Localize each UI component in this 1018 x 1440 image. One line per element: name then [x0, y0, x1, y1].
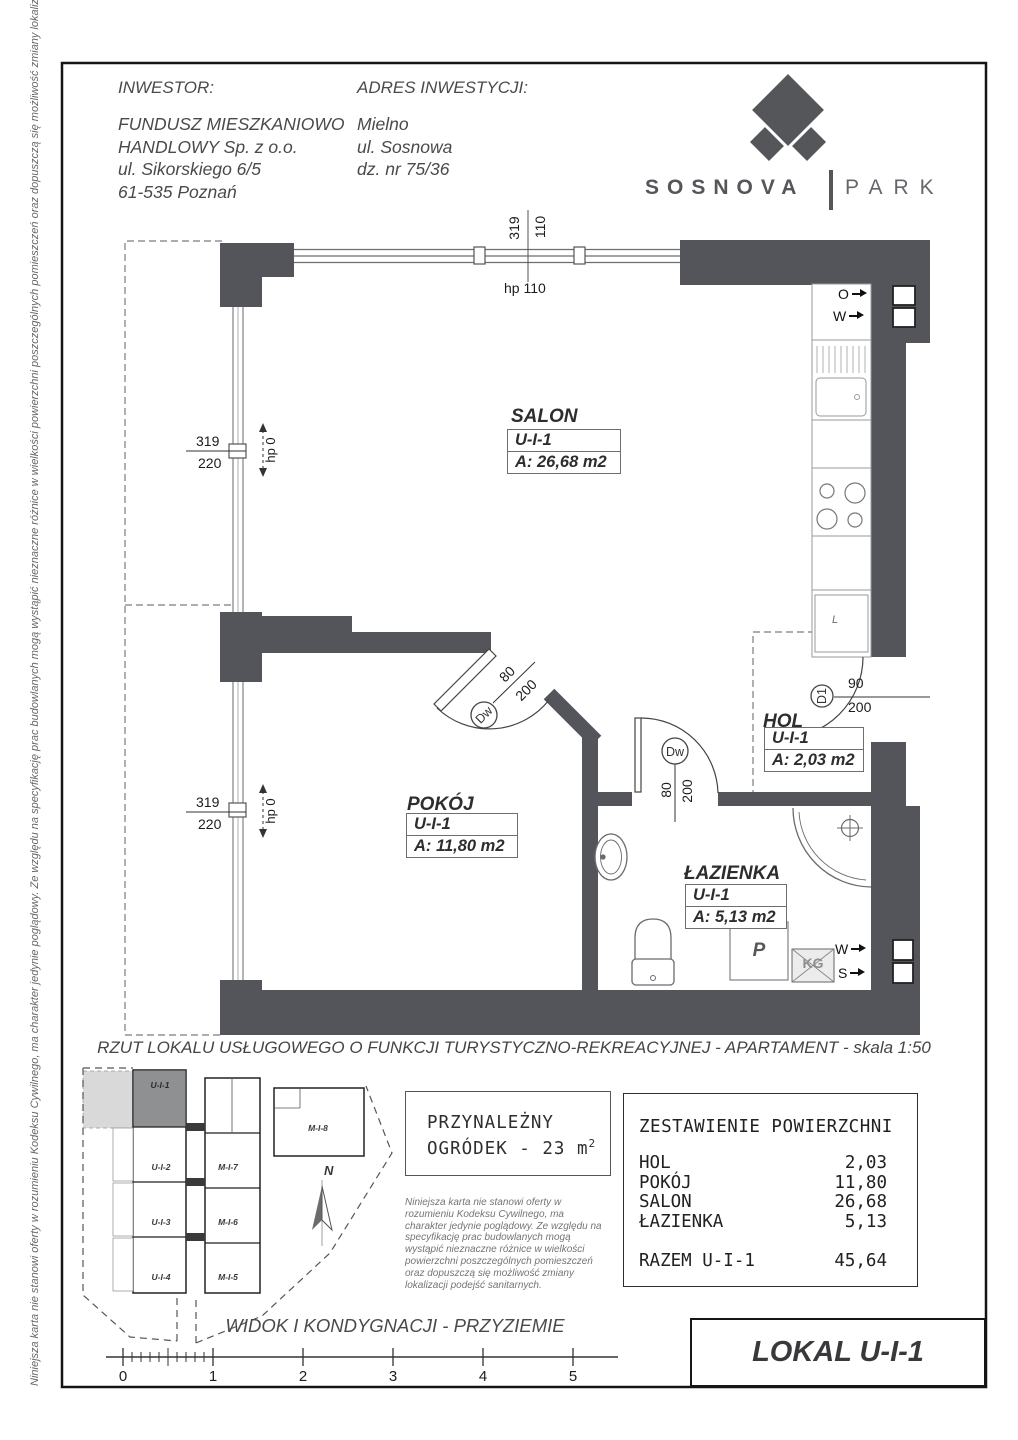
row-label: SALON: [639, 1193, 692, 1213]
top-window: [294, 250, 680, 263]
site-unit-u3: U-I-3: [139, 1217, 183, 1227]
scale-label-1: 1: [198, 1368, 228, 1385]
vent-s: S: [838, 965, 865, 981]
investor-label: INWESTOR:: [118, 78, 214, 98]
wall-segment: [220, 612, 262, 682]
toilet-icon: [635, 919, 671, 961]
room-area: A: 5,13 m2: [686, 907, 786, 928]
door-label-d1: D1: [814, 673, 830, 719]
washbasin-icon: [595, 834, 627, 880]
window-mullion: [574, 247, 585, 264]
arrow-right-icon: [850, 968, 865, 978]
table-row: POKÓJ 11,80: [639, 1174, 887, 1194]
unit-title: LOKAL U-I-1: [752, 1336, 924, 1369]
garden-box: PRZYNALEŻNY OGRÓDEK - 23 m2: [405, 1091, 611, 1176]
garden-line2: OGRÓDEK - 23 m2: [427, 1134, 610, 1159]
room-tag-pokoj: U-I-1 A: 11,80 m2: [406, 813, 518, 858]
dim-left-upper-b: 220: [198, 455, 221, 471]
wall-segment: [352, 632, 491, 653]
row-value: 26,68: [834, 1193, 887, 1213]
site-unit-u1: U-I-1: [138, 1080, 182, 1090]
room-unit: U-I-1: [686, 885, 786, 907]
scale-label-5: 5: [558, 1368, 588, 1385]
investor-street: ul. Sikorskiego 6/5: [118, 158, 345, 181]
row-label: ŁAZIENKA: [639, 1213, 723, 1233]
arrow-right-icon: [852, 289, 867, 299]
row-value: 2,03: [845, 1154, 887, 1174]
wall-segment: [596, 792, 632, 806]
unit-title-box: LOKAL U-I-1: [690, 1318, 986, 1387]
site-unit-u2: U-I-2: [139, 1162, 183, 1172]
dim-top-hp: hp 110: [504, 280, 546, 296]
site-unit-m5: M-I-5: [206, 1272, 250, 1282]
site-unit-u4: U-I-4: [139, 1272, 183, 1282]
scale-label-2: 2: [288, 1368, 318, 1385]
site-unit-m6: M-I-6: [206, 1217, 250, 1227]
row-label: HOL: [639, 1154, 671, 1174]
logo-suffix-text: PARK: [845, 176, 945, 200]
wall-diagonal: [549, 694, 596, 741]
room-tag-lazienka: U-I-1 A: 5,13 m2: [685, 884, 787, 929]
shower-icon: [793, 808, 871, 887]
wall-segment: [871, 742, 906, 806]
wall-segment: [262, 616, 352, 653]
room-unit: U-I-1: [765, 728, 863, 750]
window-mullion: [229, 803, 246, 817]
scale-label-4: 4: [468, 1368, 498, 1385]
wall-segment: [680, 240, 930, 285]
door-leaf-lazienka: [635, 718, 641, 792]
dim-door-lazienka-w: 80: [658, 767, 674, 813]
dim-left-lower-b: 220: [198, 816, 221, 832]
garden-line2-text: OGRÓDEK - 23 m: [427, 1138, 589, 1158]
window-mullion: [474, 247, 485, 264]
table-row: SALON 26,68: [639, 1193, 887, 1213]
arrow-right-icon: [851, 944, 866, 954]
vent-o: O: [838, 286, 867, 302]
north-arrow-icon: [312, 1180, 332, 1246]
vent-w-top: W: [833, 308, 864, 324]
vent-grille-icon: [893, 308, 915, 327]
room-name-salon: SALON: [511, 406, 578, 428]
site-building-m8: [274, 1088, 364, 1156]
total-label: RAZEM U-I-1: [639, 1252, 755, 1272]
vent-s-label: S: [838, 965, 847, 981]
wall-segment: [220, 980, 262, 1035]
plan-caption: RZUT LOKALU USŁUGOWEGO O FUNKCJI TURYSTY…: [74, 1038, 954, 1058]
scale-label-3: 3: [378, 1368, 408, 1385]
row-label: POKÓJ: [639, 1174, 692, 1194]
scale-bar: [106, 1348, 618, 1366]
table-rows: HOL 2,03 POKÓJ 11,80 SALON 26,68 ŁAZIENK…: [639, 1154, 887, 1232]
room-name-lazienka: ŁAZIENKA: [684, 863, 780, 885]
total-value: 45,64: [834, 1252, 887, 1272]
address-town: Mielno: [357, 113, 452, 136]
address-block: Mielno ul. Sosnowa dz. nr 75/36: [357, 113, 452, 181]
arrow-right-icon: [849, 311, 864, 321]
dim-top-a: 319: [506, 205, 522, 251]
room-area: A: 2,03 m2: [765, 750, 863, 771]
room-area: A: 26,68 m2: [508, 452, 620, 473]
table-total-row: RAZEM U-I-1 45,64: [639, 1252, 887, 1272]
dim-left-lower-hp: hp 0: [263, 788, 279, 834]
dim-door-d1-h: 200: [848, 699, 871, 715]
site-terraces: [113, 1128, 133, 1291]
investor-city: 61-535 Poznań: [118, 181, 345, 204]
plan-sheet: { "header": { "investor_label": "INWESTO…: [0, 0, 1018, 1440]
investor-block: FUNDUSZ MIESZKANIOWO HANDLOWY Sp. z o.o.…: [118, 113, 345, 203]
duct-label: KG: [792, 955, 834, 971]
garden-superscript: 2: [589, 1137, 597, 1150]
investor-name-1: FUNDUSZ MIESZKANIOWO: [118, 113, 345, 136]
vent-o-label: O: [838, 286, 849, 302]
wall-segment: [718, 792, 871, 806]
investor-name-2: HANDLOWY Sp. z o.o.: [118, 136, 345, 159]
vent-w-label: W: [835, 941, 848, 957]
washer-label: P: [730, 940, 788, 962]
logo-chevron-icon: [750, 72, 826, 161]
address-street: ul. Sosnowa: [357, 136, 452, 159]
dim-door-d1-w: 90: [848, 675, 864, 691]
wall-segment: [220, 990, 920, 1035]
room-area: A: 11,80 m2: [407, 836, 517, 857]
site-building-right: [205, 1078, 260, 1293]
site-unit-m8: M-I-8: [296, 1123, 340, 1133]
table-title: ZESTAWIENIE POWIERZCHNI: [639, 1117, 887, 1137]
disclaimer-text: Niniejsza karta nie stanowi oferty w roz…: [405, 1197, 607, 1291]
washbasin-tap: [601, 855, 605, 859]
address-plot: dz. nr 75/36: [357, 158, 452, 181]
door-label-dw-lazienka: Dw: [652, 744, 698, 760]
garden-highlight: [83, 1071, 133, 1128]
table-row: ŁAZIENKA 5,13: [639, 1213, 887, 1233]
dim-left-upper-a: 319: [196, 433, 219, 449]
site-plan: [83, 1068, 392, 1343]
site-unit-m7: M-I-7: [206, 1162, 250, 1172]
vent-w-label: W: [833, 308, 846, 324]
room-tag-salon: U-I-1 A: 26,68 m2: [507, 429, 621, 474]
dim-door-lazienka-h: 200: [679, 768, 695, 814]
table-row: HOL 2,03: [639, 1154, 887, 1174]
wall-segment: [871, 285, 906, 657]
room-unit: U-I-1: [508, 430, 620, 452]
view-caption: WIDOK I KONDYGNACJI - PRZYZIEMIE: [175, 1315, 615, 1337]
area-summary-table: ZESTAWIENIE POWIERZCHNI HOL 2,03 POKÓJ 1…: [623, 1093, 918, 1287]
vent-w-bath: W: [835, 941, 866, 957]
scale-label-0: 0: [108, 1368, 138, 1385]
dim-left-lower-a: 319: [196, 794, 219, 810]
row-value: 5,13: [845, 1213, 887, 1233]
site-corridor-doors: [186, 1123, 205, 1241]
north-label: N: [324, 1163, 333, 1178]
room-unit: U-I-1: [407, 814, 517, 836]
logo-divider: [829, 170, 833, 210]
dim-left-upper-hp: hp 0: [263, 427, 279, 473]
fridge-label: L: [832, 614, 838, 626]
vent-grille-icon: [893, 286, 915, 305]
terrace-boundary: [125, 241, 222, 1035]
toilet-base: [632, 959, 674, 985]
dim-top-b: 110: [532, 204, 548, 250]
wall-segment: [220, 243, 294, 307]
garden-line1: PRZYNALEŻNY: [427, 1113, 610, 1134]
address-label: ADRES INWESTYCJI:: [357, 78, 528, 98]
row-value: 11,80: [834, 1174, 887, 1194]
logo-brand-text: SOSNOVA: [645, 176, 804, 200]
side-disclaimer-vertical: Niniejsza karta nie stanowi oferty w roz…: [29, 56, 41, 1386]
vent-grille-icon: [893, 940, 913, 960]
vent-grille-icon: [893, 963, 913, 983]
room-tag-hol: U-I-1 A: 2,03 m2: [764, 727, 864, 772]
